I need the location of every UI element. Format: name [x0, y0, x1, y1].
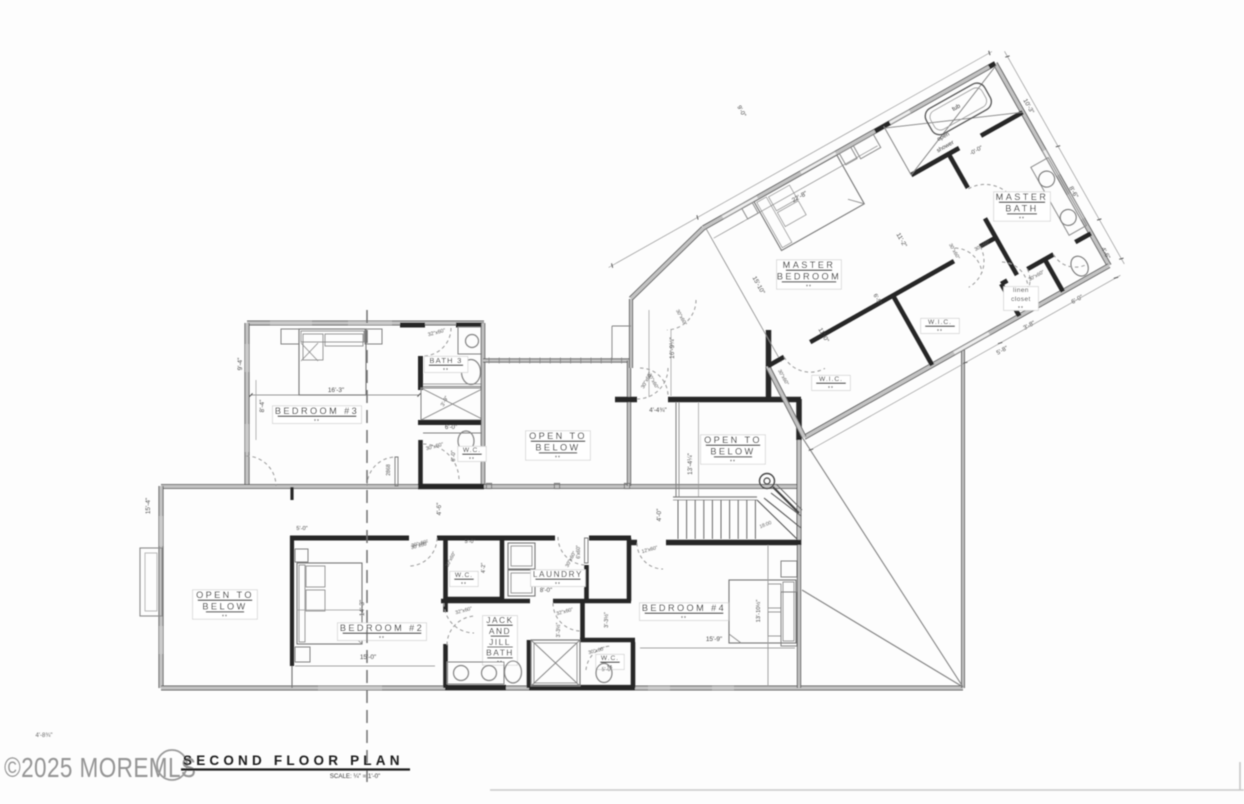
svg-text:**: **: [1019, 217, 1025, 223]
svg-text:LAUNDRY: LAUNDRY: [533, 570, 583, 579]
svg-text:BEDROOM #4: BEDROOM #4: [642, 603, 726, 613]
svg-text:MASTER: MASTER: [783, 260, 836, 270]
svg-text:5'-0": 5'-0": [296, 526, 307, 532]
svg-text:13'-4¼": 13'-4¼": [687, 453, 694, 475]
svg-text:JACK: JACK: [486, 615, 513, 625]
svg-text:**: **: [379, 636, 385, 642]
svg-text:**: **: [806, 285, 812, 291]
svg-text:**: **: [681, 616, 687, 622]
svg-text:SECOND FLOOR PLAN: SECOND FLOOR PLAN: [183, 753, 404, 768]
svg-text:BEDROOM #2: BEDROOM #2: [340, 623, 424, 633]
svg-text:BELOW: BELOW: [202, 602, 247, 612]
svg-text:2868: 2868: [386, 464, 392, 476]
svg-text:**: **: [730, 460, 736, 466]
svg-text:BELOW: BELOW: [535, 443, 580, 453]
svg-text:9'-4": 9'-4": [237, 358, 244, 371]
svg-text:**: **: [222, 615, 228, 621]
svg-text:linen: linen: [1013, 287, 1029, 294]
svg-text:**: **: [1018, 306, 1024, 312]
svg-text:W.I.C.: W.I.C.: [819, 376, 843, 383]
svg-text:OPEN TO: OPEN TO: [529, 431, 587, 441]
svg-text:AND: AND: [489, 626, 511, 636]
svg-text:BELOW: BELOW: [710, 447, 755, 457]
svg-text:W.C.: W.C.: [601, 655, 619, 662]
svg-text:15'-4": 15'-4": [145, 498, 152, 514]
svg-text:closet: closet: [1011, 296, 1031, 303]
svg-text:4'-0": 4'-0": [656, 509, 663, 522]
svg-text:16'-3": 16'-3": [328, 387, 344, 394]
svg-text:4'-2": 4'-2": [481, 563, 487, 573]
svg-text:16'-9¼": 16'-9¼": [669, 337, 676, 359]
svg-text:BATH: BATH: [486, 648, 514, 658]
svg-text:BATH 3: BATH 3: [429, 356, 462, 365]
svg-text:15'-0": 15'-0": [360, 654, 376, 661]
svg-text:4'-6": 4'-6": [436, 503, 443, 516]
svg-text:4'-4¾": 4'-4¾": [649, 407, 666, 414]
svg-text:8'-0": 8'-0": [540, 587, 552, 594]
svg-text:3'-3½": 3'-3½": [603, 612, 610, 628]
svg-text:W.C.: W.C.: [463, 447, 481, 454]
svg-text:13'-10½": 13'-10½": [755, 600, 762, 623]
svg-text:BATH: BATH: [1005, 204, 1038, 214]
svg-text:BEDROOM #3: BEDROOM #3: [275, 406, 359, 416]
svg-text:**: **: [937, 329, 943, 335]
svg-text:OPEN TO: OPEN TO: [196, 590, 254, 600]
svg-text:**: **: [443, 368, 449, 374]
svg-text:**: **: [314, 419, 320, 425]
svg-text:6'x60": 6'x60": [576, 545, 582, 559]
svg-text:JILL: JILL: [489, 637, 511, 647]
svg-text:**: **: [461, 582, 467, 588]
svg-text:W.I.C.: W.I.C.: [928, 319, 952, 326]
svg-text:**: **: [469, 457, 475, 463]
svg-text:15'-9": 15'-9": [706, 636, 722, 643]
svg-text:BEDROOM: BEDROOM: [777, 272, 841, 282]
svg-text:4'-8¾": 4'-8¾": [36, 733, 53, 739]
svg-text:5'-0": 5'-0": [465, 539, 476, 545]
svg-text:W.C.: W.C.: [455, 572, 473, 579]
svg-text:**: **: [555, 456, 561, 462]
svg-text:MASTER: MASTER: [996, 192, 1049, 202]
svg-text:6'-0": 6'-0": [445, 424, 457, 431]
svg-text:SCALE: ¼" = 1'-0": SCALE: ¼" = 1'-0": [330, 773, 380, 780]
svg-text:6'-0": 6'-0": [451, 450, 457, 461]
svg-text:14'-3": 14'-3": [359, 600, 366, 616]
svg-text:**: **: [828, 386, 834, 392]
svg-text:8'-4": 8'-4": [259, 400, 266, 413]
svg-text:**: **: [555, 582, 561, 588]
svg-text:3'-3½": 3'-3½": [555, 623, 562, 638]
svg-text:OPEN TO: OPEN TO: [704, 435, 762, 445]
